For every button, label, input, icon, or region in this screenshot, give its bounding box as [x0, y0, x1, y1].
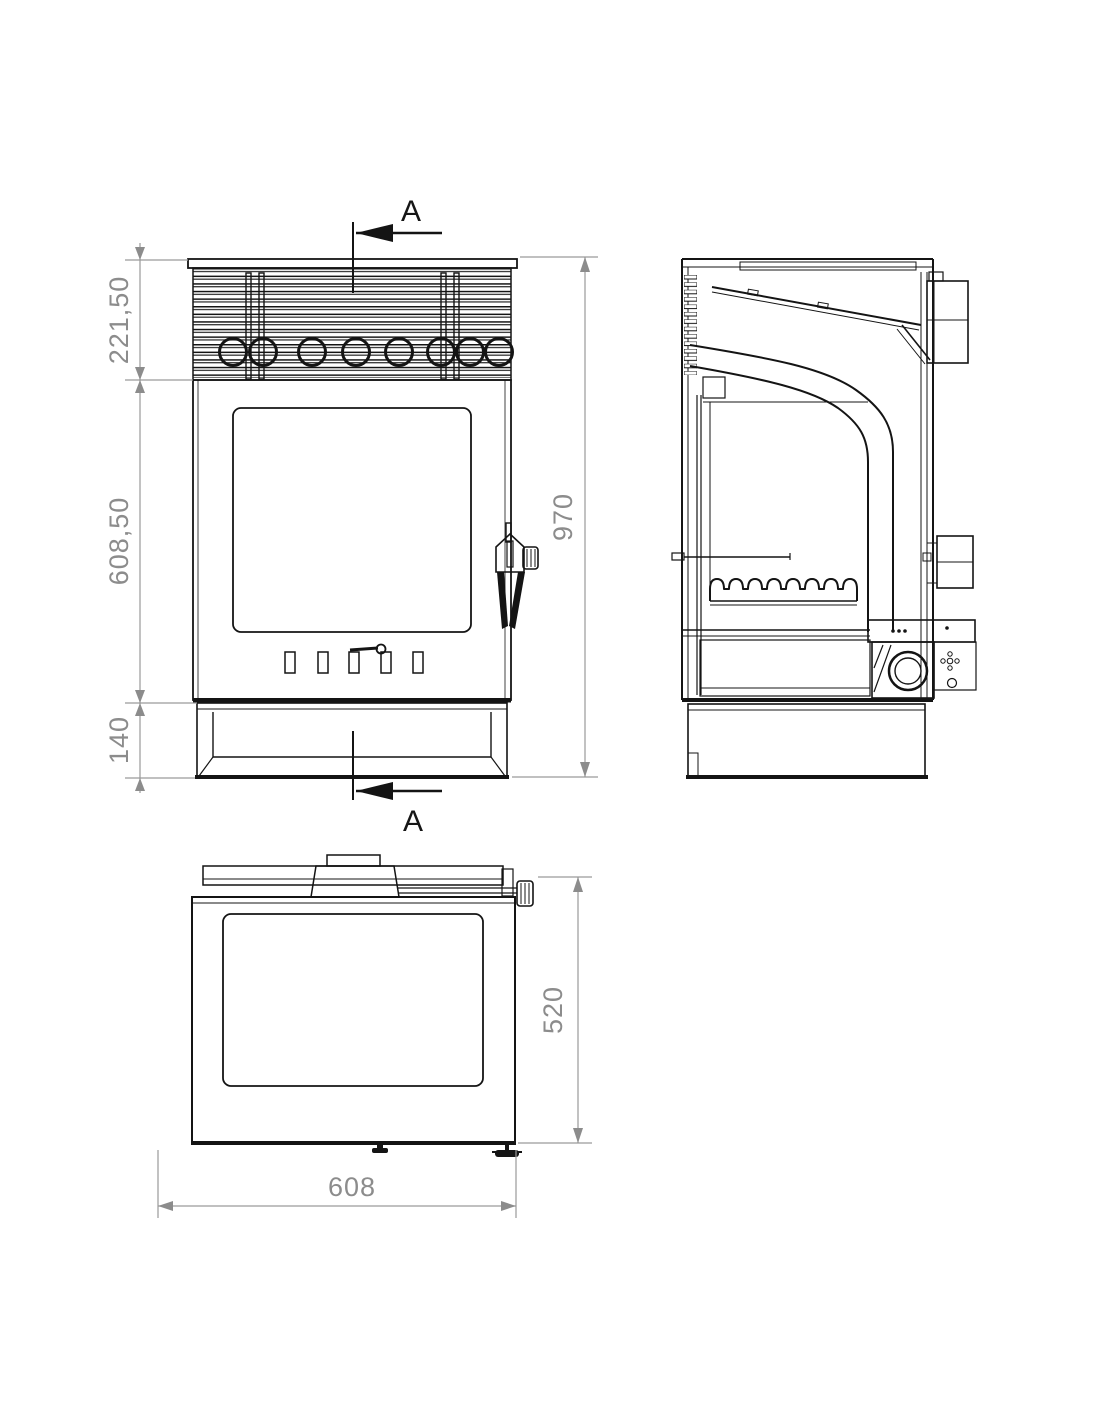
door-panel	[192, 897, 515, 1145]
riddling-rod	[672, 553, 790, 560]
base-plinth-side	[686, 704, 928, 779]
dim-plan-width: 608	[158, 1150, 516, 1218]
door-handle	[496, 523, 538, 629]
convection-duct	[690, 345, 893, 632]
rear-panel	[203, 855, 513, 897]
leveling-feet	[372, 1143, 522, 1157]
baffle-plate	[712, 287, 930, 364]
rear-outlet-box	[923, 536, 973, 588]
section-label-top: A	[401, 195, 421, 228]
section-label-bottom: A	[403, 805, 423, 838]
log-retainer	[710, 579, 857, 605]
front-louver-fins	[684, 275, 697, 375]
control-board	[934, 642, 976, 690]
dim-label-front-top: 221,50	[104, 276, 134, 365]
top-grille	[188, 259, 517, 380]
plan-section-view	[192, 855, 533, 1157]
drawing-canvas: A	[0, 0, 1100, 1422]
dim-front-left-chain: 221,50 608,50 140	[104, 243, 197, 793]
dim-label-front-total: 970	[548, 493, 578, 541]
stove-body	[193, 380, 511, 703]
dim-label-front-base: 140	[104, 716, 134, 764]
handle-prong-left	[497, 572, 508, 629]
dim-label-plan-depth: 520	[538, 986, 568, 1034]
flue-collar	[311, 866, 399, 897]
top-cap-channel	[740, 262, 916, 270]
section-cut-arrowhead	[356, 782, 393, 800]
glass-pane	[223, 914, 483, 1086]
handle-head	[496, 534, 524, 572]
dim-plan-depth: 520	[518, 877, 592, 1143]
air-control-slots	[285, 645, 423, 674]
front-view: A	[188, 195, 538, 838]
technical-drawing: A	[0, 0, 1100, 1422]
dimensions: 221,50 608,50 140 970 520 608	[104, 243, 598, 1218]
dim-label-front-mid: 608,50	[104, 497, 134, 586]
flue-collar-cap	[327, 855, 380, 866]
dim-front-total-height: 970	[512, 257, 598, 777]
louver-slats	[193, 268, 511, 378]
section-cut-arrowhead	[356, 224, 393, 242]
side-section-view	[672, 259, 976, 779]
dim-label-plan-width: 608	[328, 1172, 376, 1202]
glass-window	[233, 408, 471, 632]
section-arrow-bottom: A	[353, 731, 442, 838]
door-glass-section	[697, 377, 868, 695]
handle-knob	[523, 547, 538, 569]
firebox-floor	[683, 630, 870, 696]
